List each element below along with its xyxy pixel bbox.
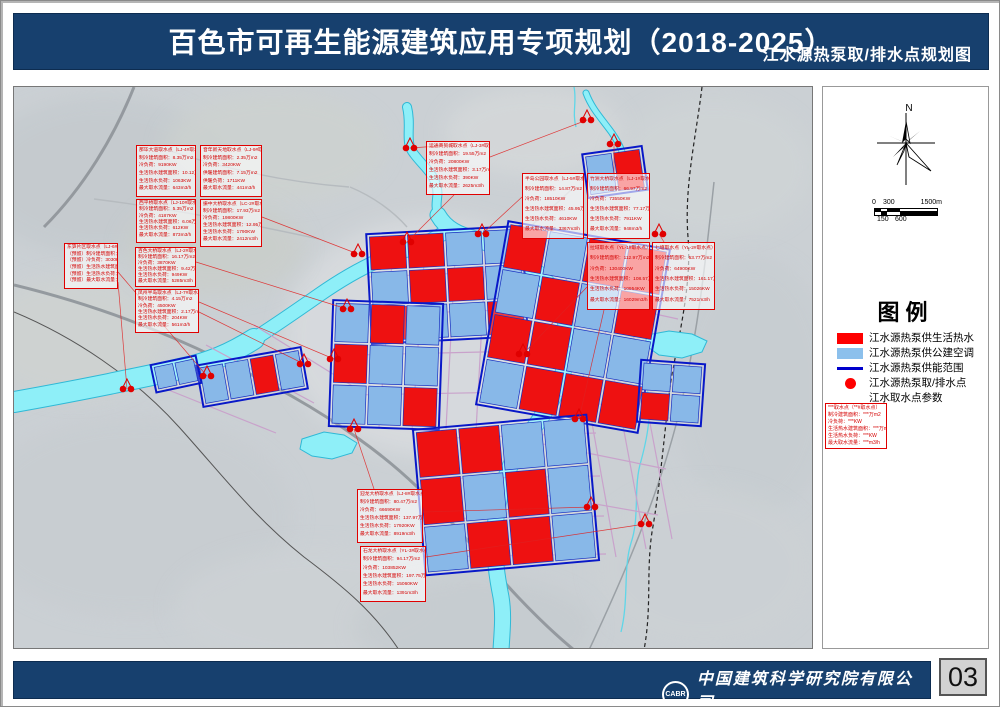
intake-annotation: 百色大桥取水点（LJ-2#取水点）制冷建筑面积：16.17万m2冷负荷：3870… <box>135 247 196 287</box>
intake-annotation-title: 竹洲大桥取水点（LJ-1#取水点） <box>590 175 647 185</box>
intake-annotation-title: 迎龙大桥取水点（LJ-8#取水点） <box>360 491 420 499</box>
plan-sheet: 百色市可再生能源建筑应用专项规划（2018-2025） 江水源热泵取/排水点规划… <box>0 0 1000 707</box>
intake-annotation-line: 供暖负荷：1711KW <box>203 178 259 186</box>
scale-label: 150 <box>877 216 889 223</box>
intake-annotation: 东笋片区取水点（LJ-6#取水点）（预留）（预留）制冷建筑面积：9.25万m2（… <box>64 243 118 289</box>
legend-item-label: 江水源热泵供生活热水 <box>869 333 974 344</box>
intake-annotation-line: 制冷建筑面积：53.77万m2 <box>655 254 712 264</box>
intake-annotation: 那毕大道取水点（LJ-4#取水点）制冷建筑面积：8.35万m2冷负荷：9190K… <box>136 145 196 197</box>
blue-area-swatch <box>837 348 863 359</box>
intake-annotation-line: 最大取水流量：873m3/h <box>139 233 193 239</box>
intake-annotation-line: 冷负荷：3420KW <box>203 162 259 170</box>
intake-annotation: 运通商贸城取水点（LJ-3#取水点）制冷建筑面积：19.55万m2冷负荷：208… <box>426 141 490 195</box>
ac-parcel <box>449 302 486 337</box>
ac-parcel <box>175 359 198 384</box>
ac-parcel <box>371 271 408 306</box>
hot-water-parcel <box>459 425 503 473</box>
scale-bar: 0 300 1500m 150 600 <box>874 199 938 229</box>
intake-annotation-title: 那毕大道取水点（LJ-4#取水点） <box>139 147 193 155</box>
intake-annotation-line: 冷负荷：19800KW <box>203 215 259 222</box>
intake-annotation-line: 最大取水流量：948m3/h <box>590 225 647 235</box>
intake-annotation-line: 生活热水负荷：15060KW <box>363 581 423 589</box>
boundary-line-swatch <box>837 363 863 374</box>
intake-annotation-line: 生活热水建筑面积：3.17万m2 <box>429 167 487 175</box>
intake-annotation-title: 运通商贸城取水点（LJ-3#取水点） <box>429 143 487 151</box>
hot-water-parcel <box>509 516 553 564</box>
intake-annotation-title: 拉域取水点（YL-1#取水点） <box>590 244 647 254</box>
intake-annotation-line: 生活热水建筑面积：137.97万m2 <box>360 515 420 523</box>
intake-annotation-title: 石龙大桥取水点（YL-3#取水点） <box>363 548 423 556</box>
intake-annotation-line: 最大取水流量：643m3/h <box>139 185 193 193</box>
title-bar: 百色市可再生能源建筑应用专项规划（2018-2025） 江水源热泵取/排水点规划… <box>13 13 989 70</box>
intake-annotation-line: 最大取水流量：3367m3/h <box>525 225 581 235</box>
hot-water-parcel <box>370 304 404 343</box>
legend-item: 江水源热泵供能范围 <box>837 363 985 374</box>
intake-annotation-line: 生活热水建筑面积：161.17万m2 <box>655 275 712 285</box>
intake-annotation: 竹洲大桥取水点（LJ-1#取水点）制冷建筑面积：66.97万m2冷负荷：7355… <box>587 173 650 239</box>
intake-annotation-line: 生活热水负荷：4610KW <box>525 215 581 225</box>
intake-annotation-line: （预留）冷负荷：3030KW <box>67 258 115 265</box>
intake-annotation-line: 制冷建筑面积：94.17万m2 <box>363 556 423 564</box>
intake-annotation-line: （预留）最大取水流量：4540m3/h <box>67 278 115 285</box>
hot-water-parcel <box>420 476 464 524</box>
intake-annotation-title: 东笋片区取水点（LJ-6#取水点）（预留） <box>67 245 115 252</box>
ac-parcel <box>501 422 545 470</box>
intake-annotation-line: 最大取水流量：1391m3/h <box>363 590 423 598</box>
hot-water-parcel <box>505 469 549 517</box>
intake-annotation: 音年新天地取水点（LJ-9#取水点）制冷建筑面积：2.35万m2冷负荷：3420… <box>200 145 262 197</box>
intake-annotation-line: 制冷建筑面积：80.47万m2 <box>360 499 420 507</box>
ac-parcel <box>544 418 588 466</box>
ac-parcel <box>463 473 507 521</box>
hot-water-parcel <box>640 392 670 421</box>
intake-annotation-line: 生活热水建筑面积：77.17万m2 <box>590 205 647 215</box>
north-label: N <box>905 103 912 114</box>
ac-parcel <box>154 364 177 389</box>
intake-annotation-title: 半岛公园取水点（LJ-5#取水点） <box>525 175 581 185</box>
legend-list: 江水源热泵供生活热水江水源热泵供公建空调江水源热泵供能范围江水源热泵取/排水点*… <box>837 333 985 408</box>
intake-annotation-line: 生活热水建筑面积：197.75万m2 <box>363 573 423 581</box>
hot-water-parcel <box>333 344 367 383</box>
intake-point-swatch <box>837 378 863 389</box>
legend-title: 图例 <box>823 295 988 327</box>
intake-annotation-line: 最大取水流量：441m3/h <box>203 185 259 193</box>
intake-annotation-line: 冷负荷：18510KW <box>525 195 581 205</box>
intake-annotation-line: 生活热水建筑面积：10.12万m2 <box>139 170 193 178</box>
north-arrow-icon: N <box>873 101 939 187</box>
intake-annotation-line: 生活热水建筑面积：108.57万m2 <box>590 275 647 285</box>
cabr-logo-icon: CABR <box>662 681 689 707</box>
intake-annotation-line: 制冷建筑面积：4.15万m2 <box>138 297 196 303</box>
hot-water-parcel <box>407 233 444 268</box>
legend-item: 江水源热泵取/排水点 <box>837 378 985 389</box>
intake-annotation-line: 最大取水流量：2412m3/h <box>203 236 259 243</box>
intake-annotation-line: 冷负荷：9190KW <box>139 162 193 170</box>
hot-water-parcel <box>447 267 484 302</box>
page-subtitle: 江水源热泵取/排水点规划图 <box>763 41 972 65</box>
legend-item: 江水源热泵供生活热水 <box>837 333 985 344</box>
legend-item-label: 江水源热泵取/排水点 <box>869 378 966 389</box>
intake-annotation-line: 最大取水流量：8919m3/h <box>360 531 420 539</box>
intake-annotation-line: 最大取水流量：2625m3/h <box>429 183 487 191</box>
intake-annotation-title: 振中大桥取水点（LC-2#取水点） <box>203 201 259 208</box>
intake-annotation-line: 冷负荷：73550KW <box>590 195 647 205</box>
ac-parcel <box>424 524 468 572</box>
intake-annotation-line: （预留）生活热水建筑面积：1.97万m2 <box>67 265 115 272</box>
ac-parcel <box>406 306 440 345</box>
intake-annotation-line: 供暖建筑面积：7.15万m2 <box>203 170 259 178</box>
red-area-swatch <box>837 333 863 344</box>
ac-parcel <box>495 270 540 319</box>
intake-annotation: 半岛公园取水点（LJ-5#取水点）制冷建筑面积：14.87万m2冷负荷：1851… <box>522 173 584 239</box>
legend-panel: N 0 300 1500m <box>822 86 989 649</box>
intake-annotation-line: 生活热水建筑面积：12.95万m2 <box>203 222 259 229</box>
terrain-patch <box>164 92 384 202</box>
ac-parcel <box>369 345 403 384</box>
legend-item-label: 江水源热泵供公建空调 <box>869 348 974 359</box>
page-number: 03 <box>939 658 987 696</box>
param-box-swatch: ***取水点（**#取水点）制冷建筑面积：***万m2冷负荷：***KW生活热水… <box>837 393 863 404</box>
scale-label: 600 <box>895 216 907 223</box>
intake-annotation-line: 制冷建筑面积：19.55万m2 <box>429 151 487 159</box>
intake-annotation-line: 冷负荷：103852KW <box>363 565 423 573</box>
hot-water-parcel <box>403 387 437 426</box>
intake-annotation-line: 生活热水负荷：1063KW <box>139 178 193 186</box>
company-name-cn: 中国建筑科学研究院有限公司 <box>697 665 930 707</box>
intake-annotation-line: 生活热水负荷：1790KW <box>203 229 259 236</box>
intake-annotation-line: 制冷建筑面积：112.97万m2 <box>590 254 647 264</box>
ac-parcel <box>404 347 438 386</box>
intake-annotation: 振中大桥取水点（LC-2#取水点）制冷建筑面积：17.93万m2冷负荷：1980… <box>200 199 262 247</box>
intake-annotation-line: 生活热水负荷：390KW <box>429 175 487 183</box>
intake-annotation-line: 制冷建筑面积：2.35万m2 <box>203 155 259 163</box>
ac-parcel <box>672 365 702 394</box>
ac-parcel <box>670 394 700 423</box>
scale-label: 0 <box>872 199 876 206</box>
hot-water-parcel <box>467 520 511 568</box>
intake-annotation-line: 生活热水建筑面积：45.95万m2 <box>525 205 581 215</box>
hot-water-parcel <box>519 366 564 415</box>
intake-annotation: 拉域取水点（YL-1#取水点）制冷建筑面积：112.97万m2冷负荷：13040… <box>587 242 650 310</box>
intake-annotation-line: 制冷建筑面积：5.35万m2 <box>139 207 193 213</box>
ac-parcel <box>480 359 525 408</box>
intake-annotation-line: 冷负荷：20800KW <box>429 159 487 167</box>
intake-annotation-line: 制冷建筑面积：14.87万m2 <box>525 185 581 195</box>
intake-annotation-title: 音年新天地取水点（LJ-9#取水点） <box>203 147 259 155</box>
legend-item-label: 江水源热泵供能范围 <box>869 363 964 374</box>
intake-annotation-line: 制冷建筑面积：66.97万m2 <box>590 185 647 195</box>
intake-annotation: 凤州半岛取水点（LJ-7#取水点）制冷建筑面积：4.15万m2冷负荷：4500K… <box>135 289 199 333</box>
intake-annotation-line: 制冷建筑面积：8.35万m2 <box>139 155 193 163</box>
intake-annotation-line: 最大取水流量：5285m3/h <box>138 279 193 285</box>
parcel-cluster <box>329 300 443 430</box>
intake-annotation-line: 生活热水负荷：7911KW <box>590 215 647 225</box>
intake-annotation-line: 生活热水负荷：204KW <box>138 316 196 322</box>
param-sample-box: ***取水点（**#取水点）制冷建筑面积：***万m2冷负荷：***KW生活热水… <box>825 403 887 449</box>
plan-map: 那毕大道取水点（LJ-4#取水点）制冷建筑面积：8.35万m2冷负荷：9190K… <box>13 86 813 649</box>
ac-parcel <box>367 386 401 425</box>
legend-item: ***取水点（**#取水点）制冷建筑面积：***万m2冷负荷：***KW生活热水… <box>837 393 985 404</box>
intake-annotation-line: 冷负荷：64900KW <box>655 265 712 275</box>
scale-label: 1500m <box>921 199 942 206</box>
company-brand: CABR 中国建筑科学研究院有限公司 China Academy of Buil… <box>662 665 930 707</box>
parcel-cluster <box>637 360 705 426</box>
intake-annotation-line: 最大取水流量：7521m3/h <box>655 296 712 306</box>
hot-water-parcel <box>409 269 446 304</box>
footer-bar: CABR 中国建筑科学研究院有限公司 China Academy of Buil… <box>13 661 931 699</box>
intake-annotation-line: 最大取水流量：561m3/h <box>138 323 196 329</box>
legend-item: 江水源热泵供公建空调 <box>837 348 985 359</box>
parcel-cluster <box>413 415 599 576</box>
hot-water-parcel <box>527 321 572 370</box>
ac-parcel <box>642 363 672 392</box>
intake-annotation: 迎龙大桥取水点（LJ-8#取水点）制冷建筑面积：80.47万m2冷负荷：6669… <box>357 489 423 543</box>
ac-parcel <box>332 385 366 424</box>
hot-water-parcel <box>416 429 460 477</box>
intake-annotation-line: 制冷建筑面积：17.93万m2 <box>203 208 259 215</box>
intake-annotation-line: 生活热水负荷：612KW <box>139 226 193 232</box>
intake-annotation: 石龙大桥取水点（YL-3#取水点）制冷建筑面积：94.17万m2冷负荷：1038… <box>360 546 426 602</box>
intake-annotation-line: 冷负荷：66690KW <box>360 507 420 515</box>
intake-annotation-line: 冷负荷：130400KW <box>590 265 647 275</box>
intake-annotation-title: 七塘取水点（YL-2#取水点） <box>655 244 712 254</box>
intake-annotation: 七塘取水点（YL-2#取水点）制冷建筑面积：53.77万m2冷负荷：64900K… <box>652 242 715 310</box>
intake-annotation-line: 生活热水负荷：17920KW <box>360 523 420 531</box>
intake-annotation-line: 生活热水负荷：10954KW <box>590 285 647 295</box>
ac-parcel <box>567 328 612 377</box>
intake-annotation: 西平桥取水点（LJ-10#取水点）制冷建筑面积：5.35万m2冷负荷：4187K… <box>136 199 196 243</box>
intake-annotation-line: 最大取水流量：16029m3/h <box>590 296 647 306</box>
scale-label: 300 <box>883 199 895 206</box>
intake-annotation-line: 生活热水负荷：15026KW <box>655 285 712 295</box>
